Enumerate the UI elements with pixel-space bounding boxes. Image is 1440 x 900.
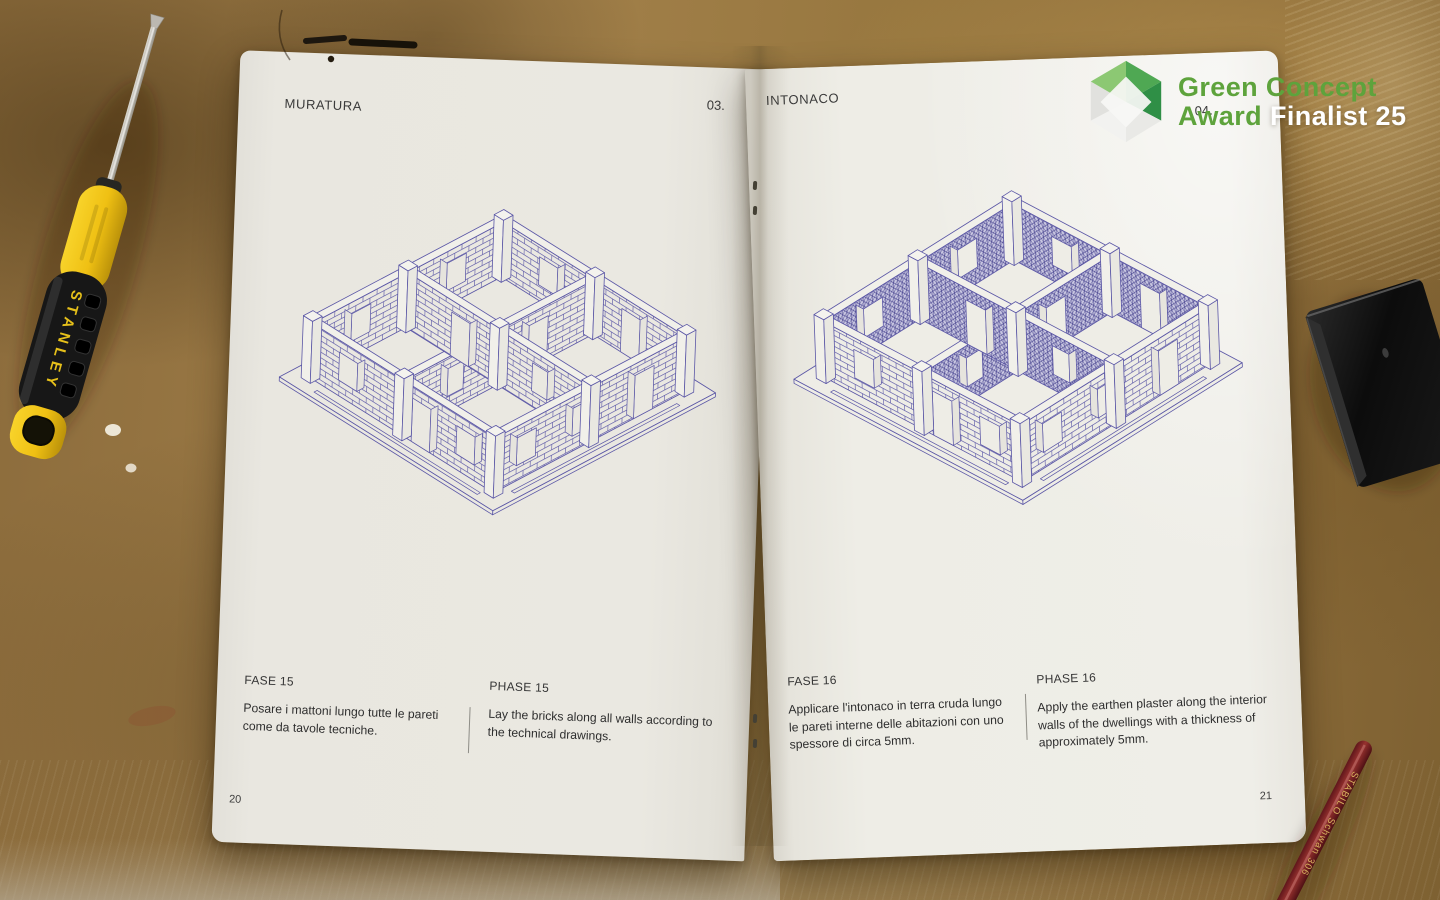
screwdriver-shaft (105, 27, 157, 188)
staple (753, 181, 757, 190)
logo-line1: Green Concept (1178, 73, 1406, 102)
staple (753, 714, 757, 723)
page-header-muratura: MURATURA (284, 96, 362, 114)
page-header-intonaco: INTONACO (766, 90, 840, 108)
phase-text: Lay the bricks along all walls according… (487, 706, 716, 749)
logo-finalist-word: Finalist 25 (1270, 101, 1406, 131)
fase-label: FASE 15 (244, 673, 456, 695)
paint-speck (105, 424, 121, 436)
booklet: MURATURA 03. FASE 15 Posare i mattoni lu… (226, 50, 1292, 842)
award-logo-text: Green Concept Award Finalist 25 (1178, 73, 1406, 131)
fase-column: FASE 16 Applicare l'intonaco in terra cr… (787, 667, 1012, 755)
footer-divider (1025, 694, 1028, 740)
phase-column: PHASE 15 Lay the bricks along all walls … (487, 679, 717, 749)
screwdriver-butt (5, 401, 71, 464)
pencil-brand-label: STABILO Schwan 306 (1298, 769, 1360, 877)
red-smudge (127, 702, 178, 730)
page-number-left: 20 (229, 793, 242, 805)
flathead-tip (147, 14, 164, 31)
right-page: INTONACO 04. FASE 16 Applicare l'intonac… (745, 50, 1307, 861)
award-logo-icon (1082, 58, 1170, 146)
fase-label: FASE 16 (787, 667, 1009, 689)
left-page: MURATURA 03. FASE 15 Posare i mattoni lu… (211, 50, 773, 861)
fase-text: Applicare l'intonaco in terra cruda lung… (788, 694, 1012, 755)
screwdriver-grip (12, 265, 113, 426)
paint-speck (126, 464, 137, 473)
isometric-drawing-brickwork (261, 193, 735, 542)
logo-award-word: Award (1178, 101, 1262, 131)
fase-text: Posare i mattoni lungo tutte le pareti c… (242, 700, 455, 743)
screwdriver-brand-label: STANLEY (40, 288, 85, 393)
logo-line2: Award Finalist 25 (1178, 102, 1406, 131)
photo-scene: MURATURA 03. FASE 15 Posare i mattoni lu… (0, 0, 1440, 900)
phase-label: PHASE 16 (1036, 664, 1268, 686)
staple (753, 739, 757, 748)
page-number-right: 21 (1260, 790, 1273, 802)
phase-column: PHASE 16 Apply the earthen plaster along… (1036, 664, 1271, 752)
phase-label: PHASE 15 (489, 679, 717, 701)
eraser (1287, 277, 1440, 509)
screwdriver-handle-top (55, 180, 132, 296)
phase-text: Apply the earthen plaster along the inte… (1037, 691, 1271, 752)
footer-divider (468, 707, 471, 753)
fase-column: FASE 15 Posare i mattoni lungo tutte le … (242, 673, 456, 743)
award-logo: Green Concept Award Finalist 25 (1082, 54, 1432, 150)
screwdriver: STANLEY (0, 3, 206, 470)
staple (753, 206, 757, 215)
chapter-number-left: 03. (707, 97, 726, 113)
isometric-drawing-plaster (775, 173, 1259, 530)
